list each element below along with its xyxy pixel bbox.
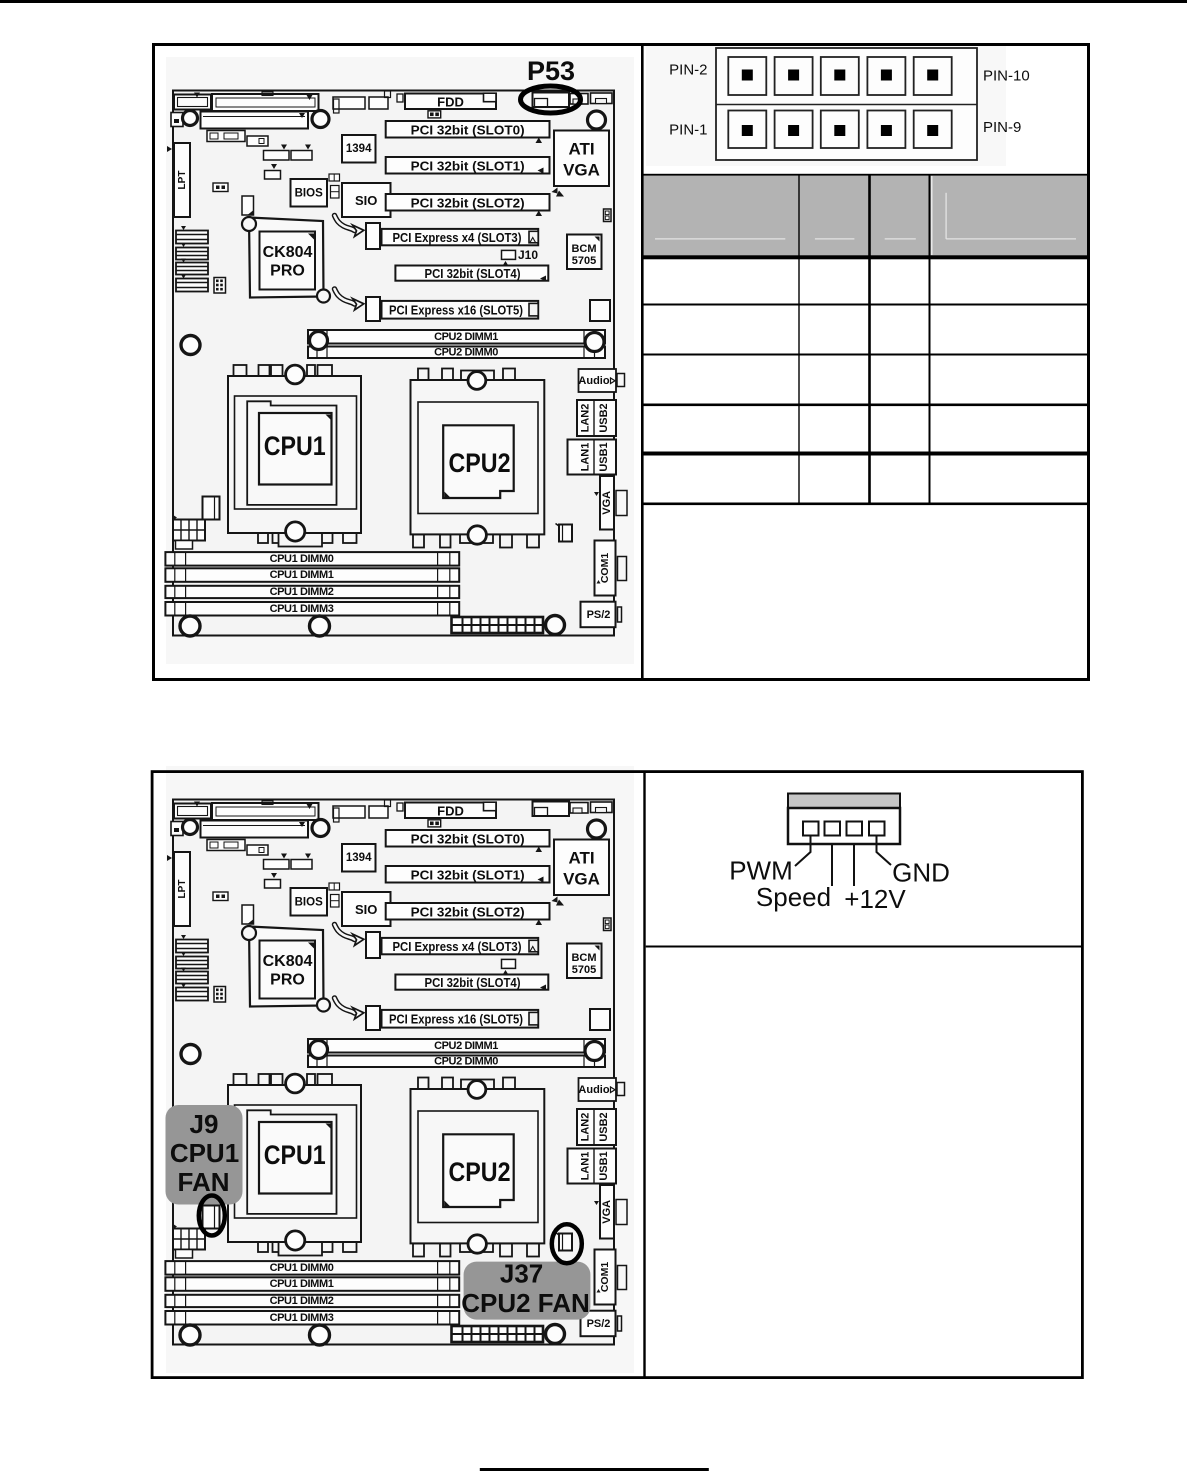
svg-text:CPU1: CPU1 [170, 1138, 239, 1168]
svg-text:PIN-2: PIN-2 [669, 62, 707, 79]
svg-text:J37: J37 [500, 1259, 543, 1289]
svg-text:J9: J9 [190, 1109, 219, 1139]
svg-text:PIN-10: PIN-10 [983, 68, 1030, 85]
svg-text:PWM: PWM [729, 856, 793, 886]
svg-text:FAN: FAN [178, 1167, 230, 1197]
svg-text:Speed: Speed [756, 882, 831, 912]
svg-text:+12V: +12V [844, 884, 906, 914]
svg-text:PIN-9: PIN-9 [983, 119, 1021, 136]
svg-text:J10: J10 [518, 248, 538, 262]
svg-text:GND: GND [892, 857, 950, 887]
svg-text:CPU2 FAN: CPU2 FAN [461, 1288, 590, 1318]
svg-text:P53: P53 [527, 56, 575, 86]
svg-text:PIN-1: PIN-1 [669, 122, 707, 139]
